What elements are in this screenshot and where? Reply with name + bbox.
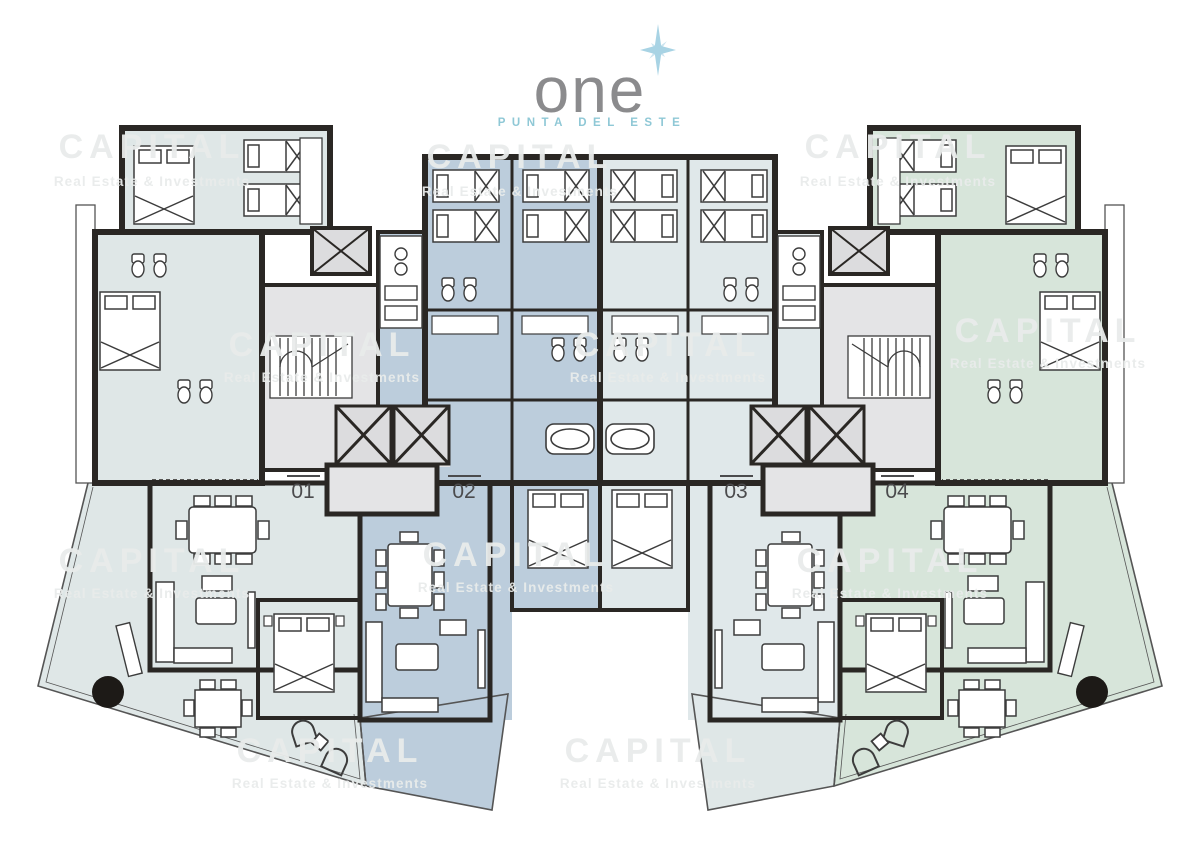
watermark: CAPITALReal Estate & Investments — [232, 732, 428, 791]
watermark: CAPITALReal Estate & Investments — [418, 536, 614, 595]
svg-text:CAPITAL: CAPITAL — [955, 312, 1142, 350]
svg-text:CAPITAL: CAPITAL — [59, 542, 246, 580]
watermark: CAPITALReal Estate & Investments — [422, 138, 618, 199]
svg-text:Real Estate & Investments: Real Estate & Investments — [224, 370, 420, 385]
svg-text:Real Estate & Investments: Real Estate & Investments — [950, 356, 1146, 371]
svg-text:CAPITAL: CAPITAL — [805, 128, 992, 166]
unit-04-label: 04 — [885, 480, 909, 503]
unit-02-label: 02 — [452, 480, 475, 503]
svg-text:Real Estate & Investments: Real Estate & Investments — [418, 580, 614, 595]
svg-text:CAPITAL: CAPITAL — [237, 732, 424, 770]
svg-text:Real Estate & Investments: Real Estate & Investments — [422, 184, 618, 199]
svg-text:CAPITAL: CAPITAL — [229, 326, 416, 364]
logo: one PUNTA DEL ESTE — [498, 24, 687, 129]
svg-text:Real Estate & Investments: Real Estate & Investments — [792, 586, 988, 601]
svg-text:Real Estate & Investments: Real Estate & Investments — [54, 174, 250, 189]
logo-subtitle: PUNTA DEL ESTE — [498, 117, 687, 129]
svg-text:CAPITAL: CAPITAL — [565, 732, 752, 770]
svg-text:Real Estate & Investments: Real Estate & Investments — [570, 370, 766, 385]
watermark: CAPITALReal Estate & Investments — [54, 542, 250, 601]
unit-03-label: 03 — [724, 480, 747, 503]
svg-text:CAPITAL: CAPITAL — [427, 138, 614, 176]
svg-text:Real Estate & Investments: Real Estate & Investments — [560, 776, 756, 791]
svg-text:CAPITAL: CAPITAL — [797, 542, 984, 580]
watermark: CAPITALReal Estate & Investments — [54, 128, 250, 189]
floor-plan-canvas: 01 02 03 04 one PUNTA DEL ESTE CAPITALRe… — [0, 0, 1200, 850]
unit-01-label: 01 — [291, 480, 314, 503]
watermark: CAPITALReal Estate & Investments — [570, 326, 766, 385]
svg-text:Real Estate & Investments: Real Estate & Investments — [232, 776, 428, 791]
logo-wordmark: one — [534, 54, 647, 126]
svg-text:CAPITAL: CAPITAL — [575, 326, 762, 364]
watermark: CAPITALReal Estate & Investments — [560, 732, 756, 791]
svg-text:Real Estate & Investments: Real Estate & Investments — [800, 174, 996, 189]
watermark: CAPITALReal Estate & Investments — [792, 542, 988, 601]
svg-text:CAPITAL: CAPITAL — [423, 536, 610, 574]
watermark: CAPITALReal Estate & Investments — [800, 128, 996, 189]
watermark: CAPITALReal Estate & Investments — [950, 312, 1146, 371]
floor-plan-page: 01 02 03 04 one PUNTA DEL ESTE CAPITALRe… — [0, 0, 1200, 850]
svg-text:Real Estate & Investments: Real Estate & Investments — [54, 586, 250, 601]
svg-text:CAPITAL: CAPITAL — [59, 128, 246, 166]
watermark: CAPITALReal Estate & Investments — [224, 326, 420, 385]
